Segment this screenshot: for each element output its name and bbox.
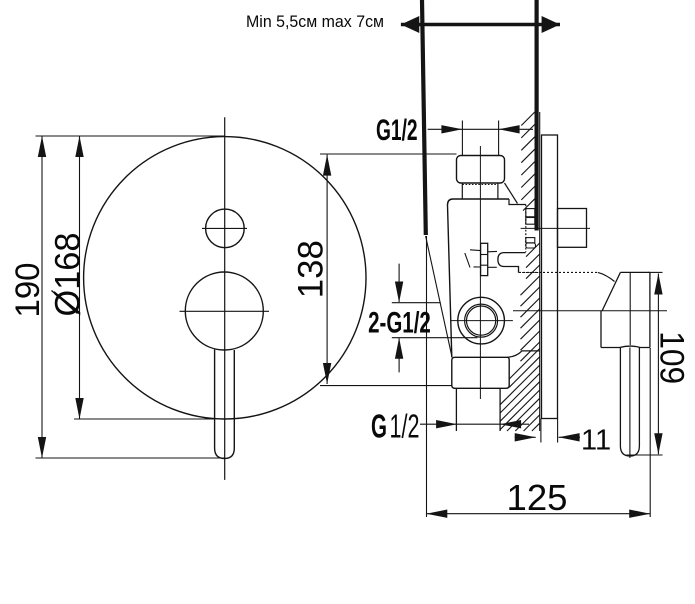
svg-text:1/2: 1/2	[390, 408, 420, 445]
svg-text:138: 138	[292, 240, 331, 298]
svg-text:G1/2: G1/2	[376, 114, 418, 147]
svg-text:Min 5,5см max 7см: Min 5,5см max 7см	[246, 12, 384, 31]
svg-text:Ø168: Ø168	[49, 233, 88, 317]
svg-text:G: G	[371, 408, 387, 445]
svg-text:109: 109	[653, 331, 691, 384]
svg-text:11: 11	[581, 425, 611, 457]
svg-text:2-G1/2: 2-G1/2	[368, 306, 431, 339]
svg-text:190: 190	[9, 263, 47, 318]
svg-text:125: 125	[507, 477, 568, 518]
